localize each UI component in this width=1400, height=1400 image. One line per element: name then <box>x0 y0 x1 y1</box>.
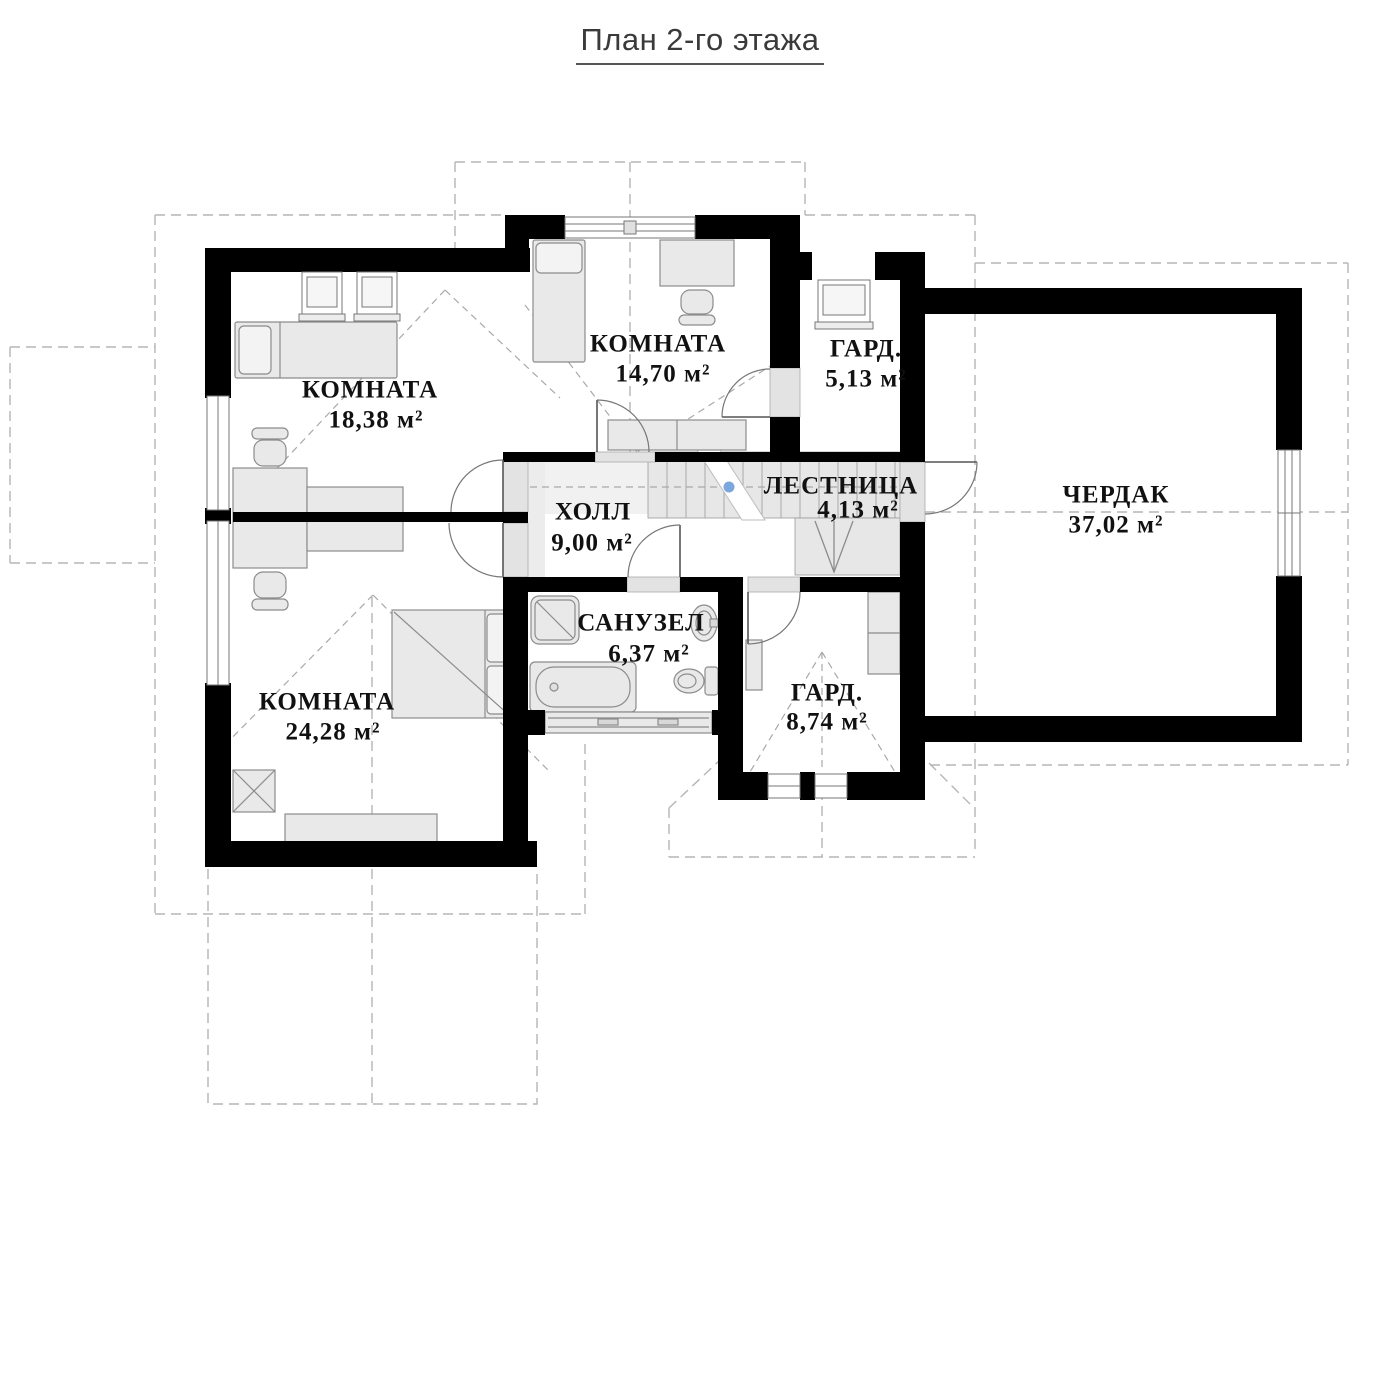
room-area-label: 4,13 м² <box>817 498 899 523</box>
desk-2 <box>660 240 734 286</box>
room-name-label: САНУЗЕЛ <box>577 611 705 636</box>
wardrobe-cabinet <box>868 592 900 674</box>
stair-landing <box>795 518 900 575</box>
room-area-label: 24,28 м² <box>285 720 380 745</box>
window-left-2 <box>207 521 229 685</box>
floor-plan-drawing <box>0 0 1400 1400</box>
room-name-label: КОМНАТА <box>302 378 438 403</box>
room-name-label: КОМНАТА <box>259 690 395 715</box>
room-name-label: ГАРД. <box>791 681 863 706</box>
page-title-text: План 2-го этажа <box>576 22 823 65</box>
roof-window-wardrobe <box>815 280 873 329</box>
bathroom-knee-wall-sill <box>545 712 712 733</box>
shower-tray <box>531 596 579 644</box>
room-area-label: 5,13 м² <box>825 367 907 392</box>
window-attic-right <box>1278 450 1300 576</box>
dresser <box>285 814 437 842</box>
stair-section-marker-dot <box>724 482 735 493</box>
roof-window-1 <box>299 272 345 321</box>
bathtub <box>530 662 636 712</box>
room-area-label: 18,38 м² <box>328 408 423 433</box>
window-wardrobe2-1 <box>768 774 800 798</box>
room-area-label: 6,37 м² <box>608 642 690 667</box>
room-name-label: ХОЛЛ <box>555 500 631 525</box>
window-wardrobe2-2 <box>815 774 847 798</box>
room-name-label: ГАРД. <box>830 337 902 362</box>
room-area-label: 37,02 м² <box>1068 513 1163 538</box>
bed-single-1 <box>235 322 397 378</box>
room-area-label: 8,74 м² <box>786 710 868 735</box>
office-chair-2 <box>252 572 288 610</box>
toilet <box>674 667 718 695</box>
wardrobe-unit-1 <box>608 420 746 450</box>
roof-window-2 <box>354 272 400 321</box>
office-chair-3 <box>679 290 715 325</box>
room-area-label: 14,70 м² <box>615 362 710 387</box>
side-table <box>233 770 275 812</box>
floor-plan-canvas: План 2-го этажа КОМНАТА18,38 м²КОМНАТА14… <box>0 0 1400 1400</box>
page-title: План 2-го этажа <box>0 22 1400 65</box>
bed-double <box>392 610 512 718</box>
window-top-middle <box>565 217 695 238</box>
bed-single-2 <box>533 240 585 362</box>
window-left-1 <box>207 396 229 510</box>
room-name-label: ЛЕСТНИЦА <box>764 474 918 499</box>
room-name-label: КОМНАТА <box>590 332 726 357</box>
room-area-label: 9,00 м² <box>551 531 633 556</box>
wardrobe-shelf <box>746 640 762 690</box>
room-name-label: ЧЕРДАК <box>1062 483 1169 508</box>
office-chair-1 <box>252 428 288 466</box>
